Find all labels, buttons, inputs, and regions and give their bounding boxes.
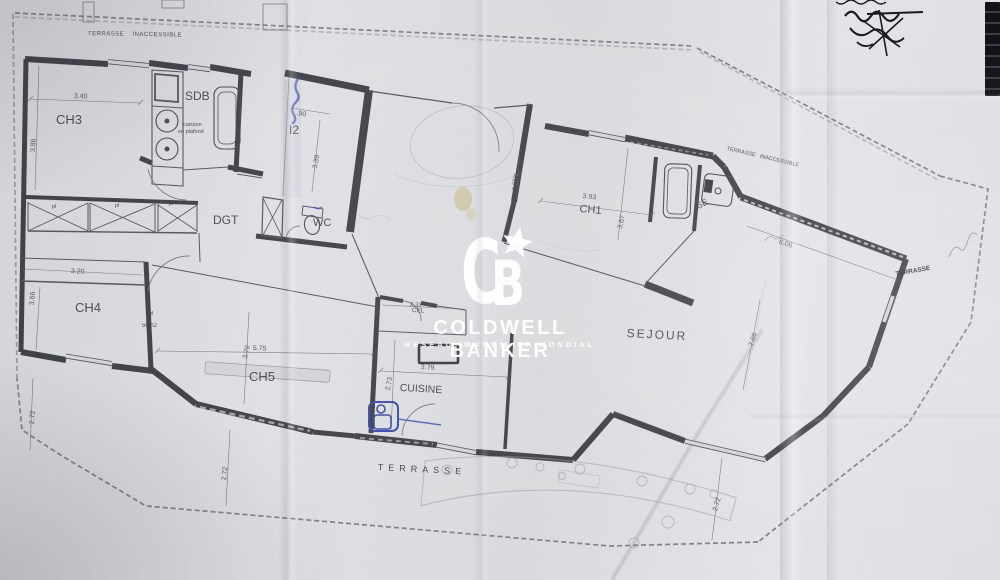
room-label-cuisine: CUISINE bbox=[399, 383, 442, 396]
room-label-i2: I2 bbox=[289, 124, 299, 136]
room-label-ch3: CH3 bbox=[56, 113, 82, 126]
dimension-ch4-height: 3.66 bbox=[29, 291, 37, 305]
dimension-i2-width: .90 bbox=[296, 110, 307, 118]
dimension-terrace-mid: 2.72 bbox=[221, 466, 229, 480]
dimension-terrace-left: 2.72 bbox=[29, 410, 37, 424]
room-label-caisson-1: caisson bbox=[183, 123, 202, 129]
dimension-cuisine-width: 3.79 bbox=[421, 364, 435, 372]
paper-stain bbox=[454, 187, 476, 220]
room-label-ch4: CH4 bbox=[75, 301, 101, 314]
dimension-ch4-width: 3.20 bbox=[71, 268, 85, 276]
door-arcs bbox=[148, 103, 499, 436]
dimension-ch5-width: 5.75 bbox=[253, 345, 267, 353]
closet-label-pl-3: pl bbox=[169, 202, 173, 208]
room-label-ch1: CH1 bbox=[579, 204, 602, 217]
closet-label-pl-1: pl bbox=[52, 205, 56, 211]
monogram-b: B bbox=[491, 248, 525, 320]
closet-label-pl-2: pl bbox=[115, 204, 119, 210]
wall-hatch bbox=[200, 142, 903, 444]
room-label-ch5: CH5 bbox=[249, 370, 275, 383]
dimension-cel-width: 2.33 bbox=[410, 302, 422, 309]
dimension-hall-width: 1.28m bbox=[512, 173, 519, 190]
room-label-wc: WC bbox=[313, 218, 331, 229]
floor-plan-drawing: C B bbox=[0, 0, 1000, 580]
watermark-monogram: C B bbox=[461, 222, 535, 324]
dimension-ch3-width: 3.40 bbox=[74, 93, 88, 100]
room-label-cel: CEL bbox=[412, 308, 425, 315]
photo-edge-object bbox=[985, 2, 1000, 96]
watermark-tagline: RESEAU IMMOBILIER MONDIAL bbox=[388, 340, 612, 349]
closet-label-pl-4: pl bbox=[149, 312, 153, 318]
room-label-dgt: DGT bbox=[213, 214, 238, 226]
dimension-ch1-width: 3.93 bbox=[582, 193, 596, 201]
closet-label-pl-area: 50m2 bbox=[142, 323, 157, 329]
room-label-caisson-2: en plafond bbox=[178, 130, 204, 136]
dimension-ch3-height: 3.86 bbox=[30, 138, 37, 152]
room-label-sdb: SDB bbox=[185, 90, 210, 102]
room-label-sejour: SEJOUR bbox=[626, 327, 687, 342]
paper-crease bbox=[612, 278, 766, 580]
floor-plan-photo: C B TERRASSE INACCESSIBLE CH3 SDB caisso… bbox=[0, 0, 1000, 580]
